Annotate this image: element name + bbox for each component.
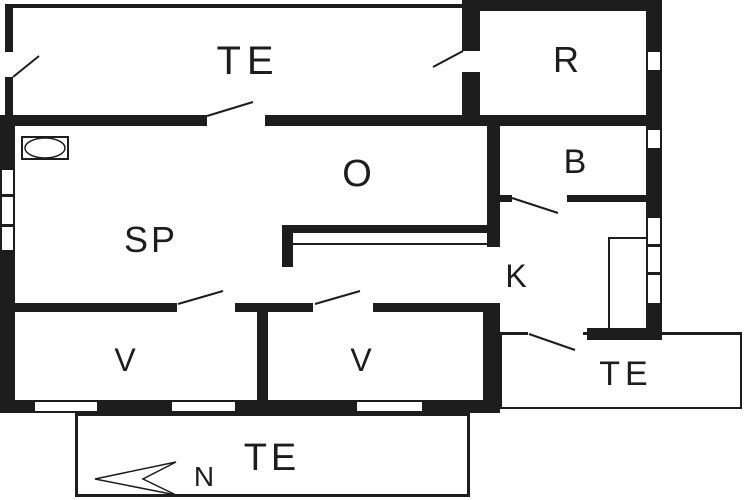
label-room-v1: V [114,344,135,376]
wall-b-bottom-a [500,195,512,202]
label-terrace-right: TE [599,357,652,391]
wall-counter-stub [282,225,293,267]
door-swing-terrace-entrance [13,56,39,77]
wall-terrace-left-upper [5,4,13,52]
label-terrace-bottom: TE [244,439,301,477]
window-left-divider-1 [2,194,13,197]
wall-r-top [462,0,662,11]
wall-counter-top [282,225,492,233]
wall-v-top-a [0,303,177,312]
label-room-k: K [505,260,526,292]
wall-r-left-lower [462,72,480,116]
wall-terrace-left-lower [5,77,13,119]
label-room-o: O [342,155,372,193]
window-right-k-divider-2 [648,272,660,275]
door-swing-terrace-to-hall [207,102,253,116]
label-room-b: B [564,145,587,179]
window-bottom-2 [172,402,235,411]
floor-plan: TE R O SP B K V V TE TE N [0,0,750,500]
window-right-r [648,52,660,70]
kitchen-unit-outline [608,237,648,330]
wall-b-bottom-b [567,195,648,202]
window-bottom-3 [357,402,422,411]
label-room-v2: V [350,344,371,376]
wall-terrace-top-edge [5,4,462,8]
terrace-right-top-b [583,332,742,335]
label-terrace-top: TE [216,41,279,81]
wall-main-horizontal-left [0,115,207,126]
label-north: N [194,463,214,491]
window-bottom-1 [35,402,97,411]
terrace-right-top-a [500,332,528,335]
window-right-b [648,130,660,148]
wall-v-top-c [373,303,497,312]
door-swing-v2-room [315,291,360,304]
wall-main-horizontal-right [265,115,662,126]
kitchen-counter-outline [293,233,492,245]
wall-left-outer [0,115,15,413]
window-left-triple [2,170,13,250]
wall-v2-right [483,303,500,413]
window-right-k-divider-1 [648,244,660,247]
door-swing-b-room [512,198,558,213]
window-right-k-triple [648,218,660,303]
stove-outline [21,136,69,160]
wall-v-divider [257,303,268,413]
label-room-r: R [553,42,579,78]
door-swing-r-room [433,51,463,67]
label-room-sp: SP [124,222,178,258]
wall-r-left-upper [462,0,480,51]
window-left-divider-2 [2,224,13,227]
door-swing-v1-room [178,291,223,304]
wall-v-top-b [235,303,313,312]
